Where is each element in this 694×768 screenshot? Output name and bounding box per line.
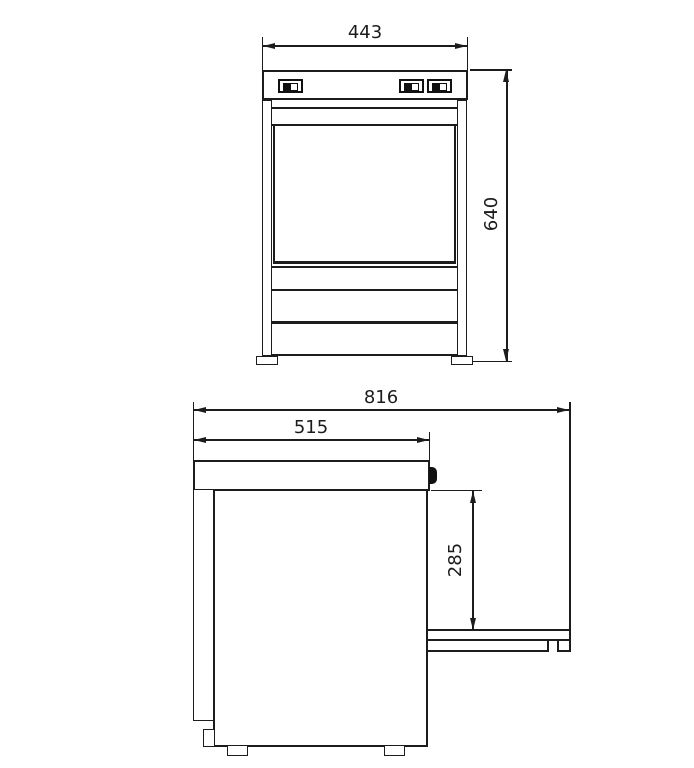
dim-label-door-clearance: 285 xyxy=(446,530,466,590)
dim-line-body-depth xyxy=(194,439,429,441)
technical-drawing: 443 640 xyxy=(0,0,694,768)
open-door-inner-panel xyxy=(426,639,549,652)
arrowhead-right-icon xyxy=(417,437,429,443)
dim-line-overall-depth xyxy=(194,409,569,411)
worktop-band xyxy=(193,460,430,491)
ext-line xyxy=(569,402,571,632)
arrowhead-up-icon xyxy=(470,491,476,503)
arrowhead-left-icon xyxy=(194,437,206,443)
dim-line-door-clearance xyxy=(472,491,474,630)
cabinet-body xyxy=(213,489,428,747)
door-handle xyxy=(557,639,571,652)
dim-label-overall-depth: 816 xyxy=(351,388,411,408)
rear-fitting xyxy=(203,729,215,747)
latch-knob xyxy=(429,467,437,484)
arrowhead-left-icon xyxy=(194,407,206,413)
dim-label-body-depth: 515 xyxy=(281,418,341,438)
back-panel-strip xyxy=(193,489,215,721)
arrowhead-right-icon xyxy=(557,407,569,413)
foot-left xyxy=(227,745,248,756)
side-view: 816 515 285 xyxy=(0,0,694,768)
foot-right xyxy=(384,745,405,756)
